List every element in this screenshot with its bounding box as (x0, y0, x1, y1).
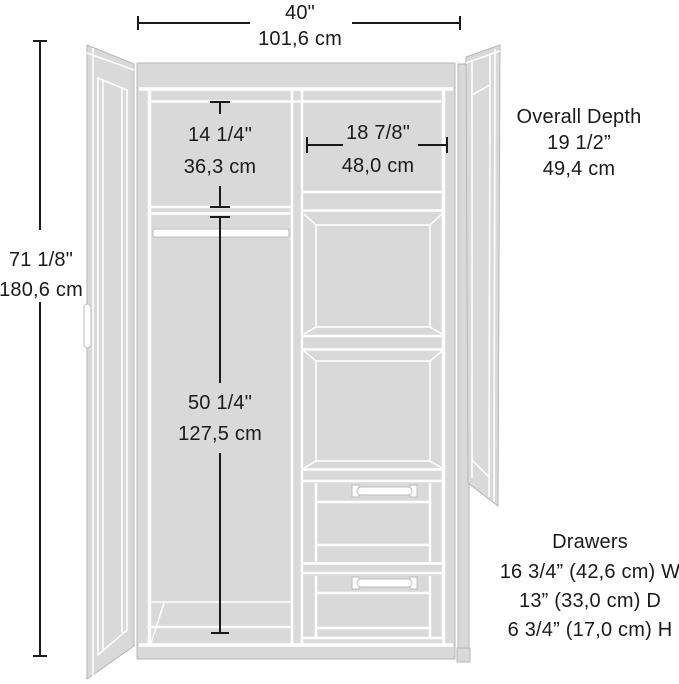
height-dimension: 71 1/8" 180,6 cm (0, 41, 83, 656)
left-door-handle (84, 304, 91, 348)
wardrobe-dimension-diagram: 40" 101,6 cm 71 1/8" 180,6 cm 14 1/4" 36… (0, 0, 679, 684)
drawers-block: Drawers 16 3/4” (42,6 cm) W 13” (33,0 cm… (500, 531, 679, 641)
overall-depth-block: Overall Depth 19 1/2” 49,4 cm (517, 106, 642, 180)
lower-left-cm-label: 127,5 cm (178, 423, 262, 445)
width-cm-label: 101,6 cm (258, 28, 342, 50)
upper-left-cm-label: 36,3 cm (184, 156, 257, 178)
overall-depth-cm-label: 49,4 cm (543, 158, 616, 180)
overall-depth-inches-label: 19 1/2” (547, 132, 611, 154)
upper-right-cm-label: 48,0 cm (342, 155, 415, 177)
height-inches-label: 71 1/8" (9, 249, 73, 271)
upper-right-inches-label: 18 7/8" (346, 122, 410, 144)
drawers-title: Drawers (552, 531, 628, 553)
height-dimension-line (33, 41, 47, 656)
diagram-canvas: 40" 101,6 cm 71 1/8" 180,6 cm 14 1/4" 36… (0, 0, 679, 684)
cabinet-body (137, 63, 455, 659)
upper-left-inches-label: 14 1/4" (188, 124, 252, 146)
overall-depth-title: Overall Depth (517, 106, 642, 128)
lower-left-inches-label: 50 1/4" (188, 392, 252, 414)
drawers-width-label: 16 3/4” (42,6 cm) W (500, 561, 679, 583)
left-door (84, 45, 134, 679)
height-cm-label: 180,6 cm (0, 279, 83, 301)
width-inches-label: 40" (285, 2, 315, 24)
right-door-inner-line (489, 53, 490, 497)
width-dimension: 40" 101,6 cm (138, 2, 460, 50)
drawers-height-label: 6 3/4” (17,0 cm) H (508, 619, 673, 641)
right-door-edge-line (494, 49, 495, 502)
drawer2-handle (357, 579, 412, 587)
side-panel-foot (457, 648, 470, 662)
drawers-depth-label: 13” (33,0 cm) D (519, 590, 661, 612)
right-door (466, 45, 500, 506)
drawer1-handle (357, 487, 412, 495)
